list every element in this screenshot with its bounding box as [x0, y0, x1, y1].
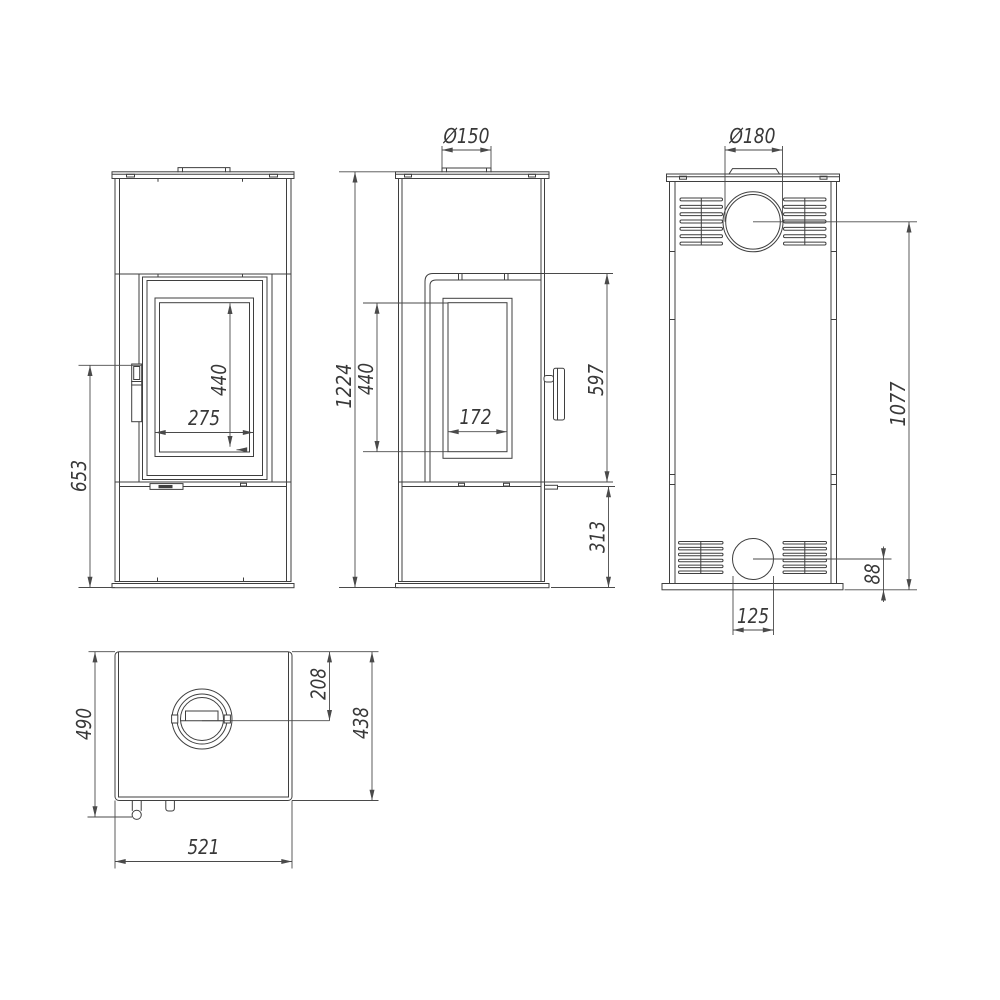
side-body-outline: [396, 168, 558, 588]
back-top-collar: [729, 169, 780, 174]
front-door-handle: [132, 364, 142, 422]
side-flue-collar: [442, 168, 491, 172]
side-window-glass: [448, 303, 507, 452]
top-flue-damper: [181, 711, 224, 721]
dim-top-body-depth: 438: [349, 707, 373, 739]
side-door-handle: [544, 368, 565, 420]
front-latch: [150, 484, 192, 490]
dim-back-inlet-width: 125: [737, 604, 769, 628]
top-dimensions: 490 208 438 521: [72, 652, 379, 869]
dim-front-height: 653: [67, 460, 91, 492]
dim-side-total-height: 1224: [332, 364, 356, 409]
dim-side-door-height: 597: [584, 364, 608, 396]
dim-top-flue-offset: 208: [307, 668, 331, 700]
side-base-lip: [545, 485, 558, 489]
top-body-outline: [115, 652, 292, 801]
side-door: [425, 274, 545, 483]
front-dimensions: 653 440 275: [67, 303, 254, 587]
top-view: 490 208 438 521: [72, 652, 379, 869]
side-window-frame: [443, 298, 512, 458]
dim-side-base-height: 313: [586, 521, 610, 553]
dim-back-flue-center-height: 1077: [886, 381, 910, 426]
dim-front-glass-width: 275: [188, 406, 220, 430]
dim-side-flue-diameter: Ø150: [443, 124, 490, 148]
dim-side-window-width: 172: [460, 405, 492, 429]
side-dimensions: Ø150 1224 440 172 597 313: [332, 124, 615, 588]
dim-side-window-height: 440: [354, 363, 378, 395]
back-view: Ø180 1077 88 125: [662, 124, 917, 635]
dim-top-body-width: 521: [188, 835, 220, 859]
side-view: Ø150 1224 440 172 597 313: [332, 124, 615, 588]
dim-back-inlet-center-height: 88: [861, 564, 885, 585]
front-top-collar: [178, 168, 230, 172]
back-bottom-vent-grilles: [679, 542, 827, 574]
back-body-outline: [662, 169, 843, 590]
dim-back-flue-diameter: Ø180: [729, 124, 776, 148]
top-flue-collar: [172, 689, 232, 749]
stove-technical-drawing: 653 440 275: [0, 0, 1000, 1000]
front-view: 653 440 275: [67, 168, 294, 588]
front-door: [143, 277, 268, 480]
dim-top-total-depth: 490: [72, 708, 96, 740]
top-drain-fitting: [132, 801, 174, 820]
dim-front-glass-height: 440: [207, 364, 231, 396]
